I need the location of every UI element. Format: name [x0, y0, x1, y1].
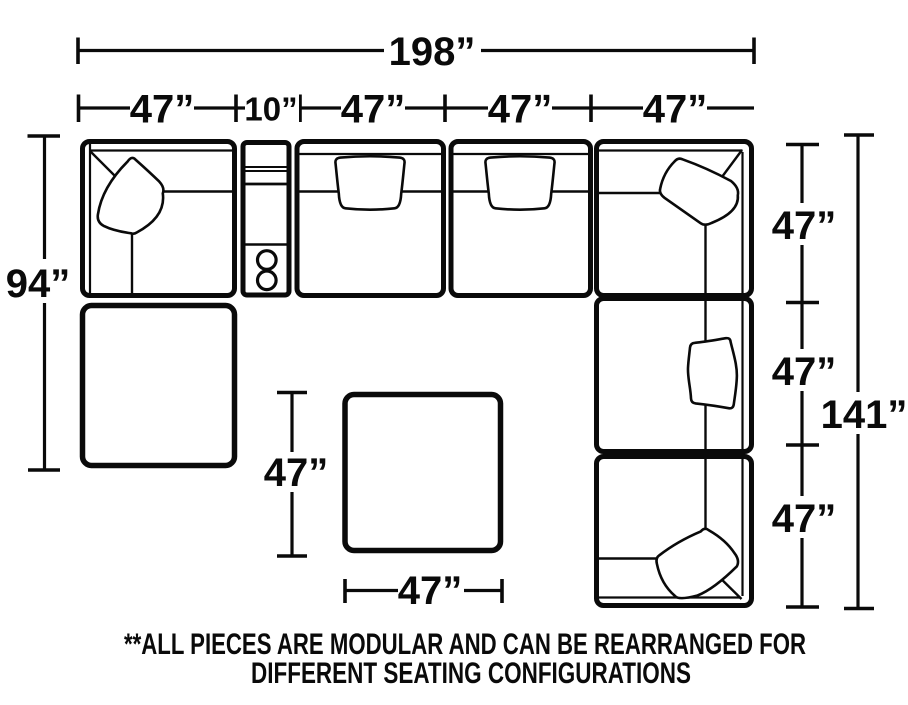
- svg-text:141”: 141”: [821, 393, 908, 437]
- svg-text:47”: 47”: [130, 88, 195, 132]
- svg-text:10”: 10”: [244, 91, 297, 128]
- svg-text:47”: 47”: [643, 88, 708, 132]
- svg-text:DIFFERENT SEATING CONFIGURATIO: DIFFERENT SEATING CONFIGURATIONS: [251, 657, 691, 690]
- svg-text:198”: 198”: [389, 30, 476, 74]
- svg-text:47”: 47”: [772, 350, 837, 394]
- svg-text:94”: 94”: [6, 262, 71, 306]
- svg-text:47”: 47”: [398, 569, 463, 613]
- svg-text:47”: 47”: [772, 497, 837, 541]
- svg-text:47”: 47”: [264, 451, 329, 495]
- svg-text:47”: 47”: [341, 88, 406, 132]
- svg-text:47”: 47”: [772, 204, 837, 248]
- svg-text:47”: 47”: [488, 88, 553, 132]
